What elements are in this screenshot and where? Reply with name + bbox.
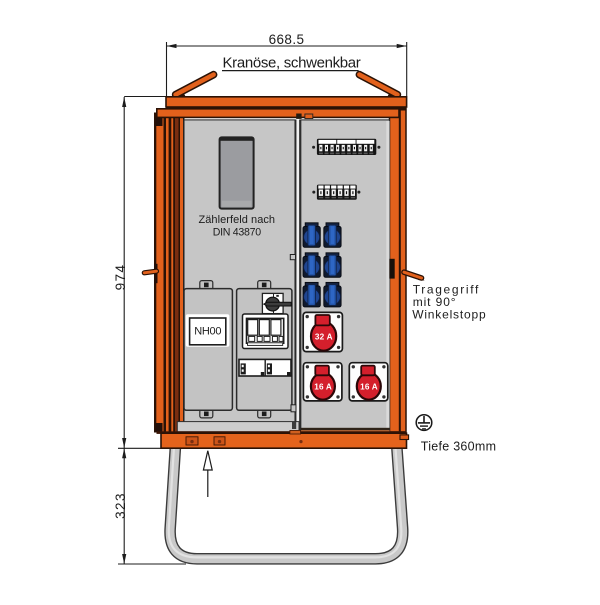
svg-text:16 A: 16 A	[314, 383, 332, 392]
svg-text:DIN 43870: DIN 43870	[213, 227, 262, 239]
svg-text:974: 974	[113, 264, 128, 291]
svg-text:323: 323	[113, 492, 128, 519]
svg-text:Kranöse, schwenkbar: Kranöse, schwenkbar	[223, 55, 361, 72]
svg-text:16 A: 16 A	[360, 383, 378, 392]
svg-text:Tiefe 360mm: Tiefe 360mm	[421, 439, 496, 453]
svg-text:668.5: 668.5	[269, 32, 305, 47]
svg-text:Zählerfeld nach: Zählerfeld nach	[199, 214, 276, 226]
svg-text:NH00: NH00	[194, 325, 221, 337]
svg-text:Winkelstopp: Winkelstopp	[412, 308, 486, 322]
svg-text:32 A: 32 A	[315, 333, 333, 342]
